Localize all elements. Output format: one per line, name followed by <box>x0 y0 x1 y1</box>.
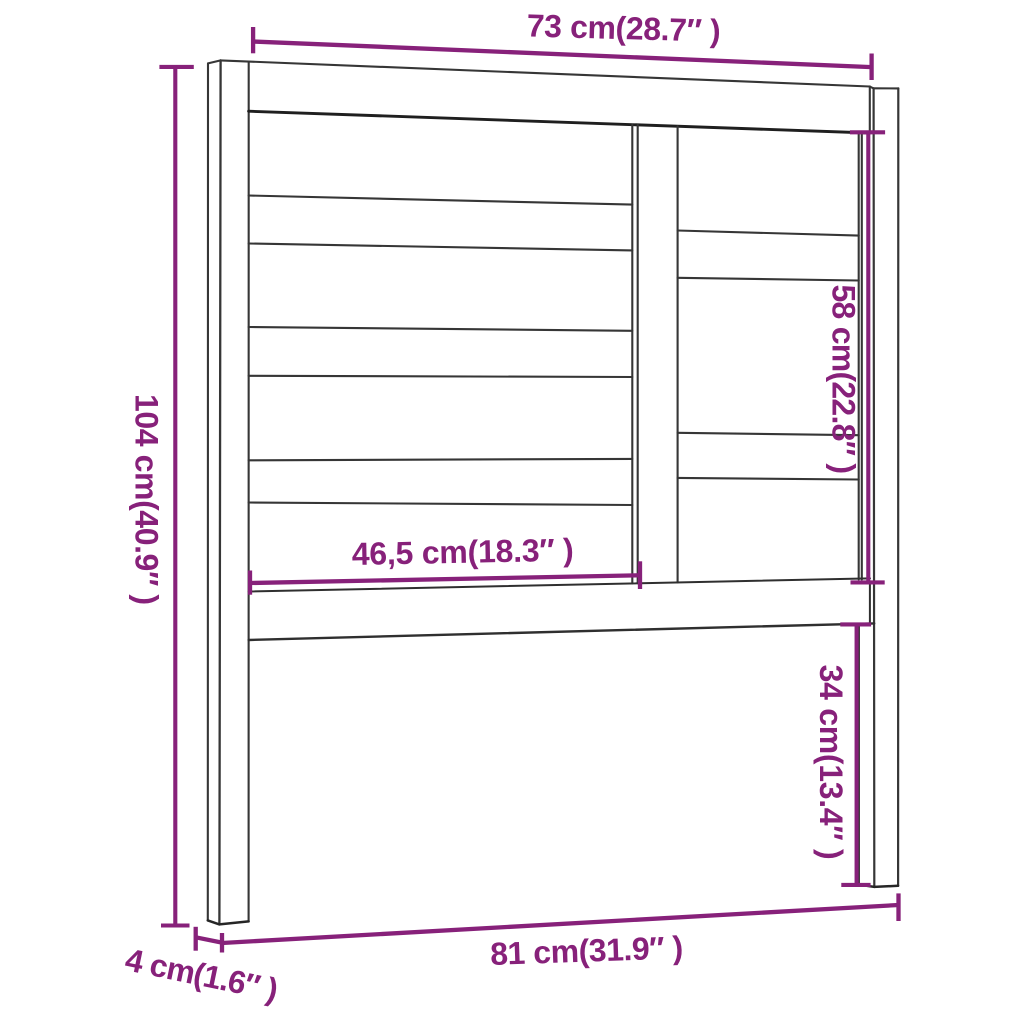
svg-text:73 cm(28.7″ ): 73 cm(28.7″ ) <box>526 7 721 48</box>
svg-text:81 cm(31.9″ ): 81 cm(31.9″ ) <box>490 929 684 972</box>
svg-text:34 cm(13.4″ ): 34 cm(13.4″ ) <box>813 665 849 860</box>
svg-text:46,5 cm(18.3″ ): 46,5 cm(18.3″ ) <box>351 532 574 572</box>
svg-text:58 cm(22.8″ ): 58 cm(22.8″ ) <box>826 285 862 475</box>
svg-text:104 cm(40.9″ ): 104 cm(40.9″ ) <box>129 394 165 605</box>
